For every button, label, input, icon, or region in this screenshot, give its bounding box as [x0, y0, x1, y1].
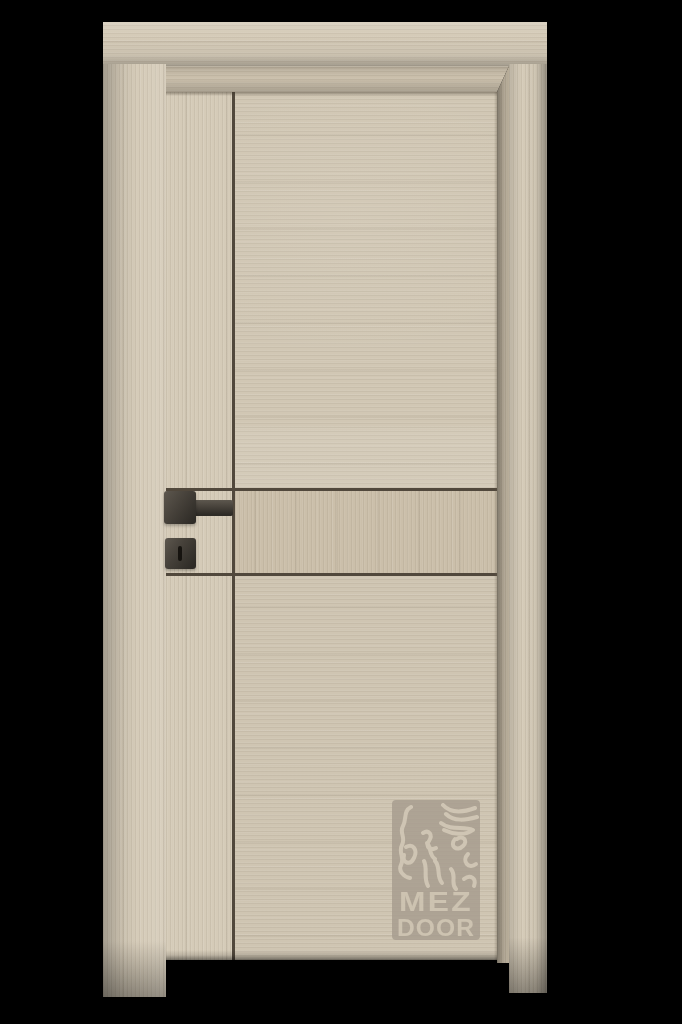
door-frame-right-casing [509, 64, 547, 993]
horizontal-groove-lower [166, 573, 497, 576]
door-right-jamb [497, 66, 509, 963]
vertical-groove [232, 92, 235, 960]
handle-rosette [164, 491, 196, 524]
door-frame-left-casing [103, 64, 166, 997]
door-frame-top-casing [103, 22, 547, 66]
door-head-jamb [166, 66, 509, 92]
keyhole-escutcheon [165, 538, 196, 569]
brand-text-door: DOOR [397, 915, 475, 941]
brand-text-mez: MEZ [399, 887, 473, 917]
upper-panel [235, 92, 497, 488]
keyhole-slot [178, 546, 182, 561]
brand-watermark-logo: MEZ DOOR [391, 799, 481, 941]
horizontal-groove-upper [166, 488, 497, 491]
door-left-stile [166, 92, 232, 960]
door-product-photo: MEZ DOOR [0, 0, 682, 1024]
middle-band [235, 491, 497, 573]
